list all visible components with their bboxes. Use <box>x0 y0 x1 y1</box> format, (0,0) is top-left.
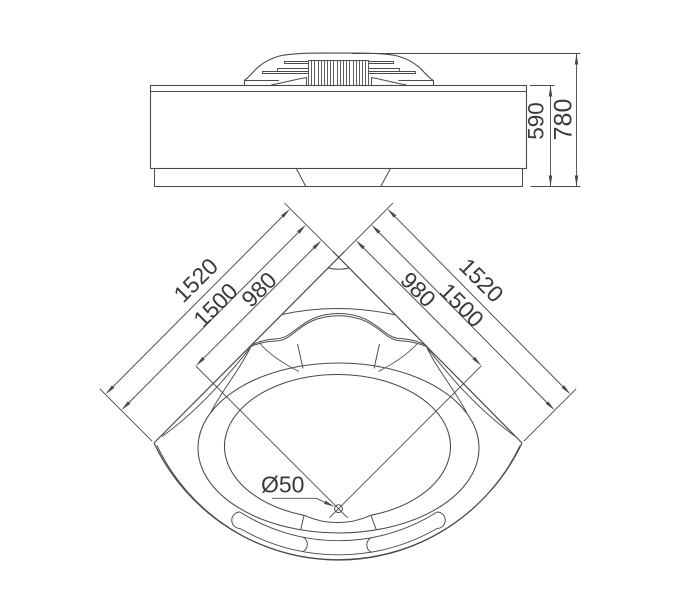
svg-text:590: 590 <box>523 102 548 140</box>
svg-text:980: 980 <box>236 267 282 313</box>
svg-text:980: 980 <box>395 267 441 313</box>
svg-text:780: 780 <box>549 99 577 141</box>
svg-text:Ø50: Ø50 <box>261 472 304 498</box>
